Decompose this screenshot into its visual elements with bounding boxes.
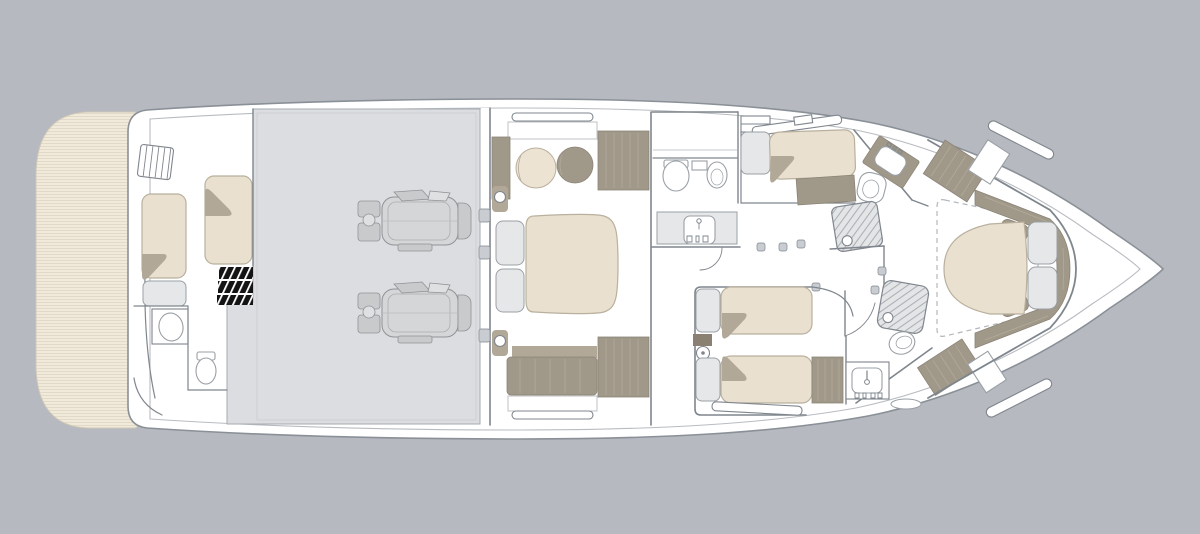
bath-mat <box>891 399 921 409</box>
sofa <box>507 357 597 395</box>
door-hinge-2 <box>495 336 506 347</box>
engine-room-floor <box>227 109 480 424</box>
door-hinge-1 <box>495 192 506 203</box>
door-hinge <box>797 240 805 248</box>
door-hinge <box>871 286 879 294</box>
nightstand-1 <box>496 221 524 265</box>
door-jamb <box>479 209 490 222</box>
door-hinge <box>779 243 787 251</box>
double-bed <box>526 215 618 314</box>
hull-window-2 <box>512 411 593 419</box>
pouf-table <box>516 148 556 188</box>
shelf <box>692 161 707 170</box>
door-hinge <box>757 243 765 251</box>
wardrobe <box>812 357 843 403</box>
seat-locker <box>143 281 186 306</box>
wall-lamp-dot <box>701 351 705 355</box>
engine-room <box>227 109 480 424</box>
wardrobe-1 <box>598 131 649 190</box>
wardrobe-2 <box>598 337 649 397</box>
bidet <box>707 162 727 188</box>
door-jamb <box>479 329 490 342</box>
swim-platform <box>36 112 138 428</box>
toilet <box>663 161 689 191</box>
hull-window-1 <box>512 113 593 121</box>
nightstand-2 <box>496 269 524 312</box>
yacht-lower-deck-plan <box>0 0 1200 534</box>
entry-steps <box>137 144 174 180</box>
berth-divider <box>693 334 712 346</box>
door-jamb <box>479 246 490 259</box>
companionway-ladder <box>219 267 253 279</box>
nightstand-2 <box>696 358 720 401</box>
vanity-sink <box>684 216 715 244</box>
door-hinge <box>878 267 886 275</box>
shower <box>876 279 930 334</box>
yacht-floorplan-page <box>0 0 1200 534</box>
nightstand-1 <box>696 289 720 332</box>
nightstand-1 <box>1028 222 1057 264</box>
sofa-back <box>512 346 597 358</box>
toilet <box>196 358 216 384</box>
corridor-floor <box>481 108 490 425</box>
headboard <box>741 132 770 174</box>
companionway-ladder <box>218 281 253 293</box>
teak-decking <box>36 112 138 428</box>
companionway-ladder <box>217 295 253 305</box>
shower <box>831 201 883 253</box>
nightstand-2 <box>1028 267 1057 309</box>
wardrobe <box>796 175 856 205</box>
armchair <box>557 147 593 183</box>
window-seat-1 <box>508 122 597 139</box>
window-seat-2 <box>508 396 597 411</box>
crew-berth-2 <box>205 176 252 264</box>
